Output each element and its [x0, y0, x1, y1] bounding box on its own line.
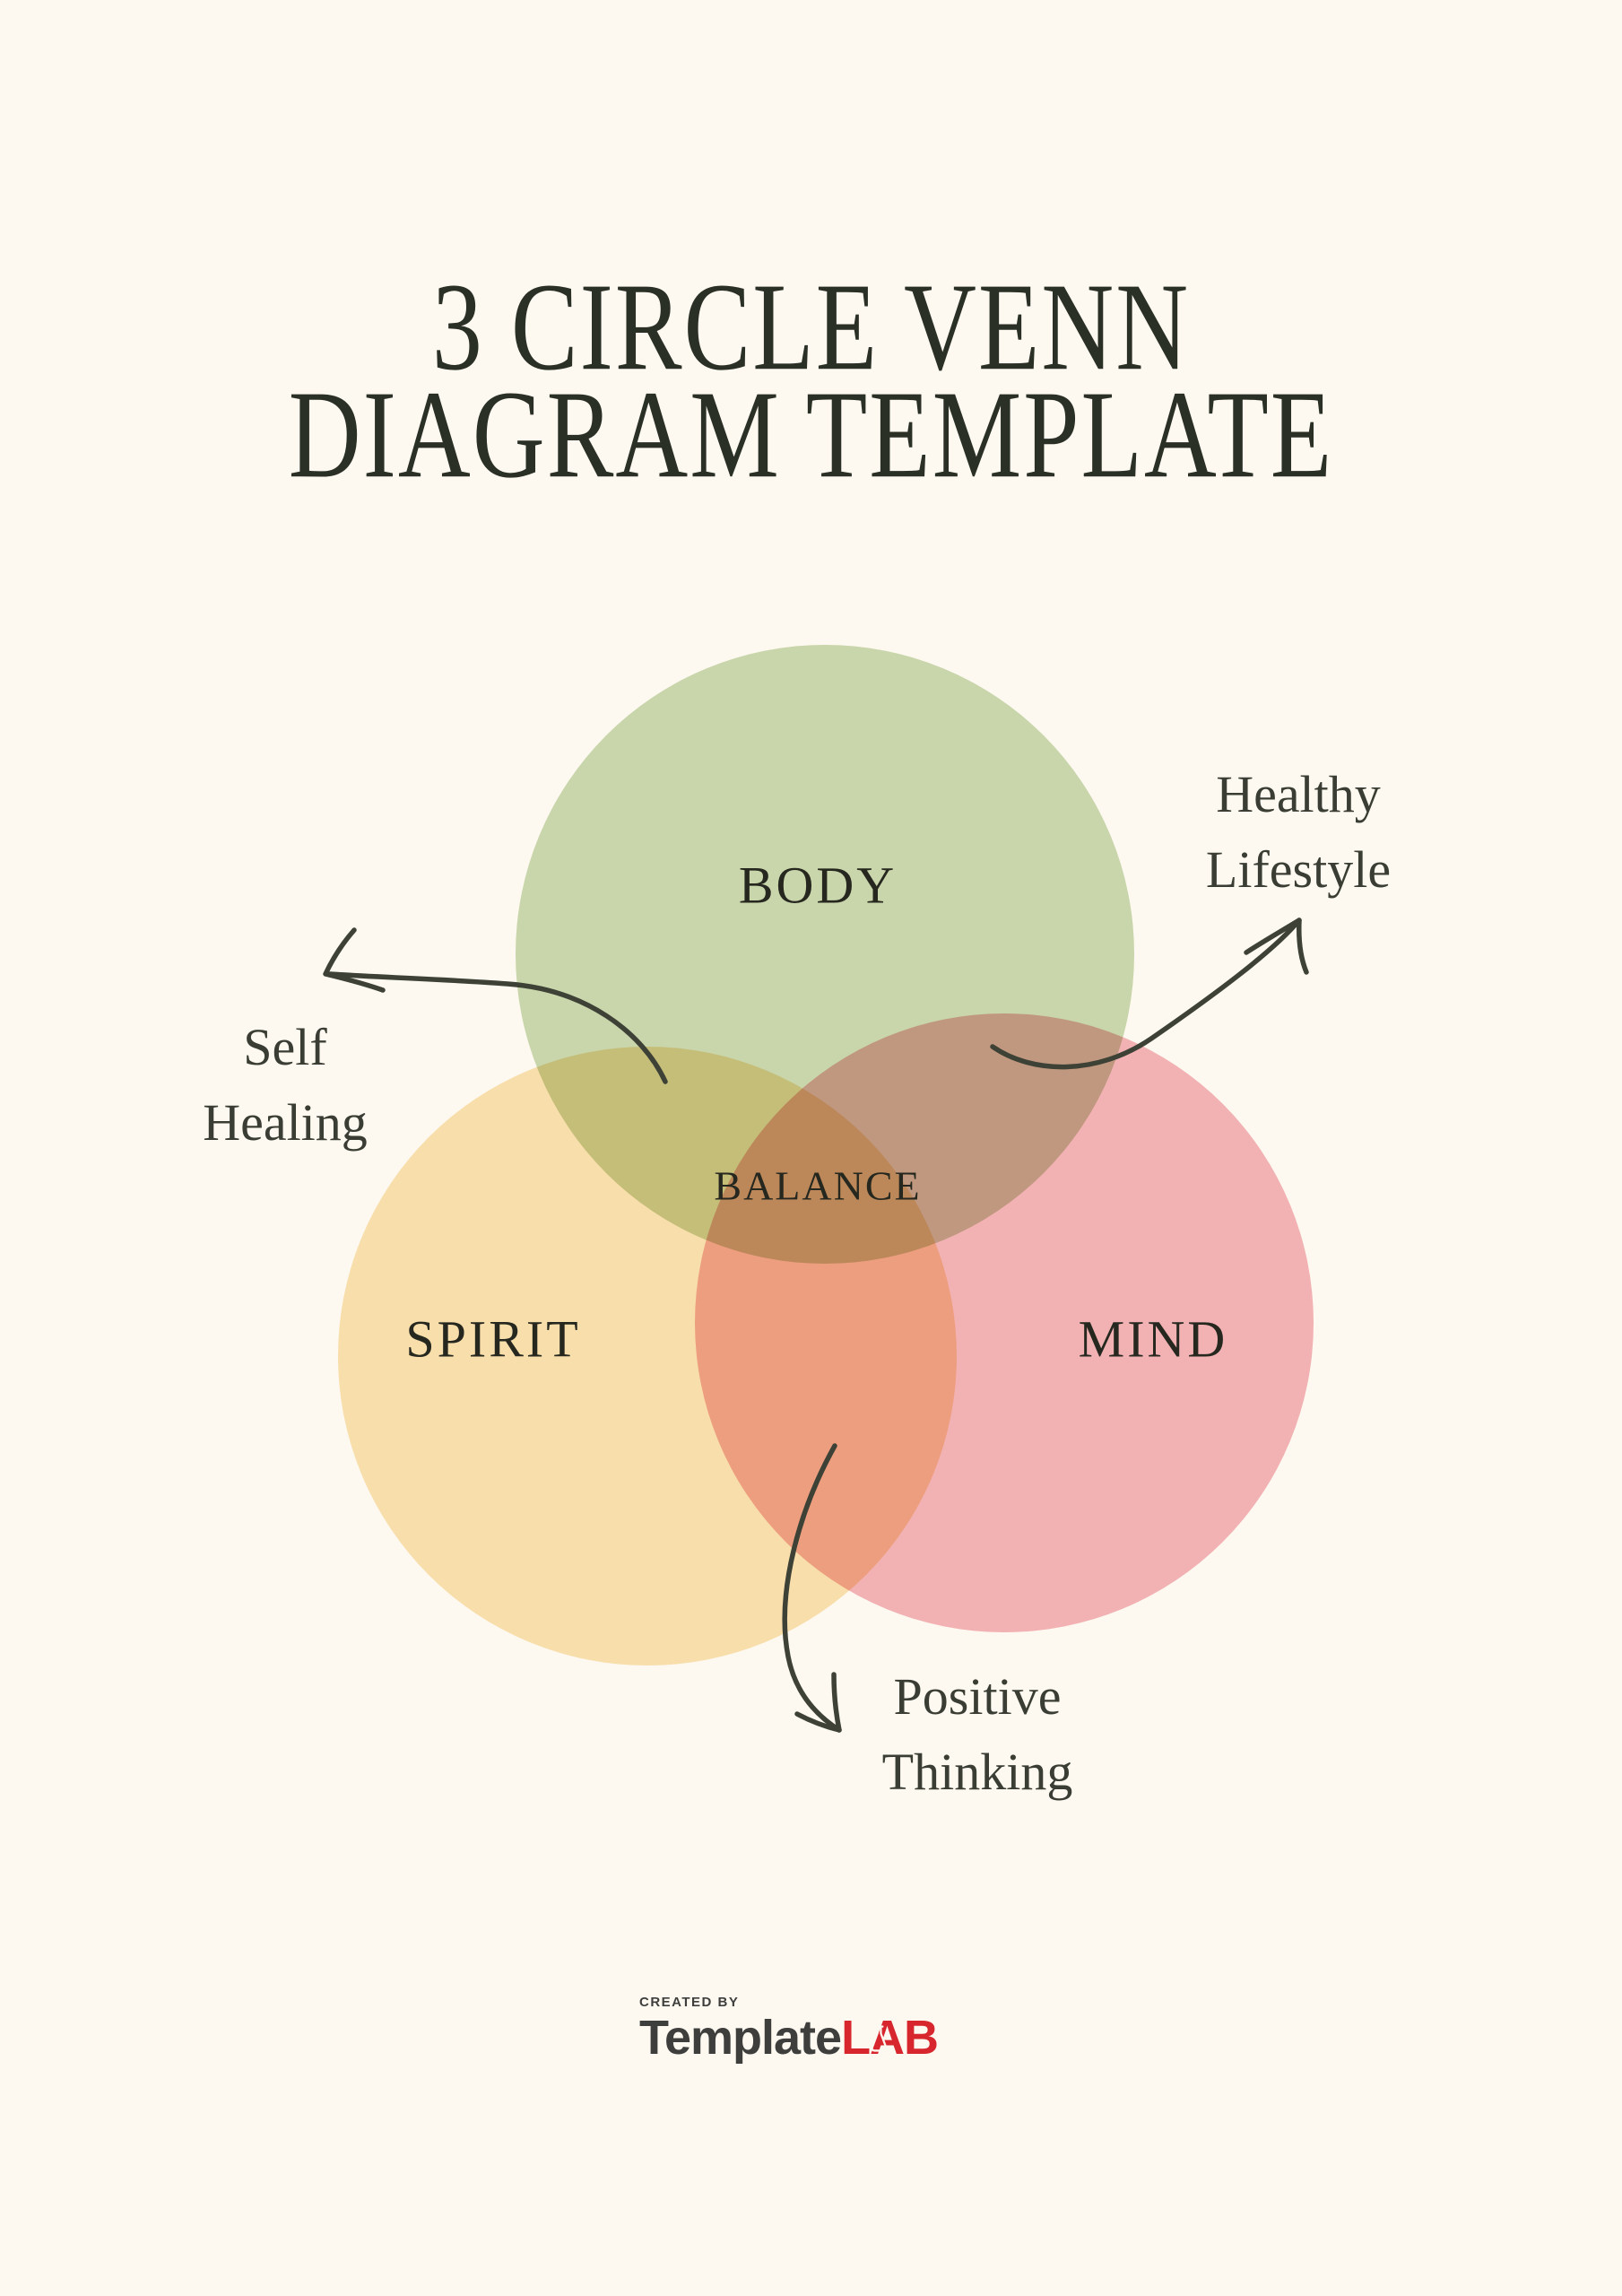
annotation-self-line1: Self [203, 1010, 368, 1085]
venn-label-spirit: SPIRIT [405, 1309, 580, 1370]
healthy-lifestyle-arrowhead-icon [1246, 920, 1306, 972]
created-by-label: CREATED BY [639, 1995, 938, 2010]
self-healing-arrowhead-icon [325, 930, 383, 990]
brand-lab-text: LAB [841, 2012, 938, 2064]
page-title-line2: DIAGRAM TEMPLATE [0, 381, 1622, 489]
brand-wordmark: TemplateLAB [639, 2012, 938, 2064]
templatelab-logo: CREATED BY TemplateLAB [639, 1995, 938, 2064]
annotation-positive-line2: Thinking [882, 1735, 1073, 1810]
positive-thinking-arrowhead-icon [797, 1674, 839, 1730]
annotation-healthy-lifestyle: Healthy Lifestyle [1206, 757, 1391, 908]
annotation-self-line2: Healing [203, 1085, 368, 1161]
annotation-healthy-line2: Lifestyle [1206, 832, 1391, 908]
annotation-healthy-line1: Healthy [1206, 757, 1391, 832]
poster: 3 CIRCLE VENN DIAGRAM TEMPLATE BODY SPIR… [0, 0, 1622, 2296]
venn-label-body: BODY [739, 856, 897, 916]
annotation-positive-line1: Positive [882, 1659, 1073, 1735]
page-title: 3 CIRCLE VENN DIAGRAM TEMPLATE [0, 274, 1622, 489]
venn-label-balance: BALANCE [714, 1162, 921, 1210]
venn-label-mind: MIND [1079, 1309, 1228, 1370]
annotation-self-healing: Self Healing [203, 1010, 368, 1161]
annotation-positive-thinking: Positive Thinking [882, 1659, 1073, 1810]
flask-icon [869, 2023, 889, 2054]
brand-template-text: Template [639, 2012, 841, 2064]
